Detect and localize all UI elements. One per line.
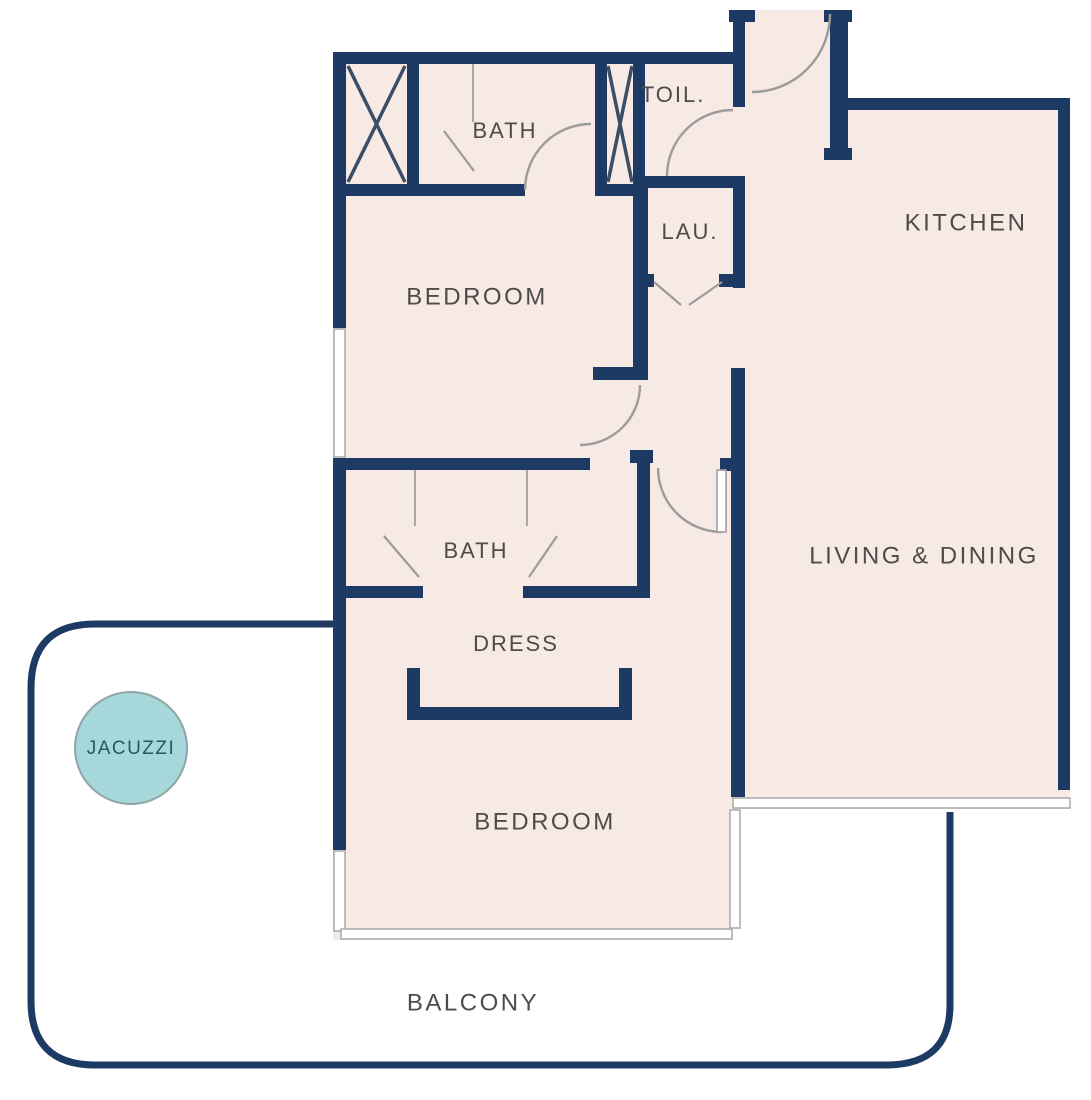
window-bedroom-top-left — [334, 329, 345, 457]
window-bedroom-lower-bottom — [341, 929, 732, 939]
wall-segment — [824, 10, 852, 22]
wall-segment — [1058, 98, 1070, 790]
wall-segment — [633, 274, 654, 287]
wall-segment — [339, 586, 423, 598]
room-label-jacuzzi: JACUZZI — [87, 738, 176, 759]
room-label-kitchen: KITCHEN — [905, 209, 1028, 236]
wall-segment — [407, 707, 632, 720]
wall-segment — [720, 458, 733, 471]
wall-segment — [333, 458, 346, 850]
room-label-bedroom-top: BEDROOM — [406, 283, 548, 310]
room-label-dress: DRESS — [473, 631, 559, 656]
wall-segment — [731, 368, 745, 797]
room-label-bath-lower: BATH — [443, 538, 508, 563]
wall-segment — [595, 64, 607, 196]
wall-segment — [637, 450, 650, 593]
room-label-balcony: BALCONY — [407, 989, 539, 1016]
room-label-bath-top: BATH — [472, 118, 537, 143]
window-living-bottom — [733, 798, 1070, 808]
door-leaf-hall — [717, 470, 726, 532]
room-label-bedroom-lower: BEDROOM — [474, 808, 616, 835]
window-bedroom-lower-left — [334, 851, 345, 931]
wall-segment — [824, 148, 852, 160]
wall-segment — [333, 184, 525, 196]
wall-segment — [645, 176, 737, 188]
room-label-laundry: LAU. — [662, 219, 719, 244]
wall-segment — [848, 98, 1070, 110]
wall-segment — [523, 586, 650, 598]
wall-segment — [593, 367, 648, 380]
wall-segment — [729, 10, 755, 22]
wall-segment — [333, 52, 737, 64]
wall-segment — [719, 274, 745, 287]
floor-plan-svg: BATH TOIL. KITCHEN LAU. BEDROOM LIVING &… — [0, 0, 1091, 1100]
room-label-toilet: TOIL. — [641, 82, 706, 107]
floor-plan-page: BATH TOIL. KITCHEN LAU. BEDROOM LIVING &… — [0, 0, 1091, 1100]
wall-segment — [733, 176, 745, 288]
wall-segment — [830, 10, 848, 160]
wall-segment — [733, 10, 745, 107]
wall-segment — [407, 64, 419, 186]
wall-segment — [619, 668, 632, 720]
window-bedroom-lower-right — [730, 810, 740, 928]
wall-segment — [333, 458, 590, 470]
room-label-living-dining: LIVING & DINING — [809, 542, 1039, 569]
